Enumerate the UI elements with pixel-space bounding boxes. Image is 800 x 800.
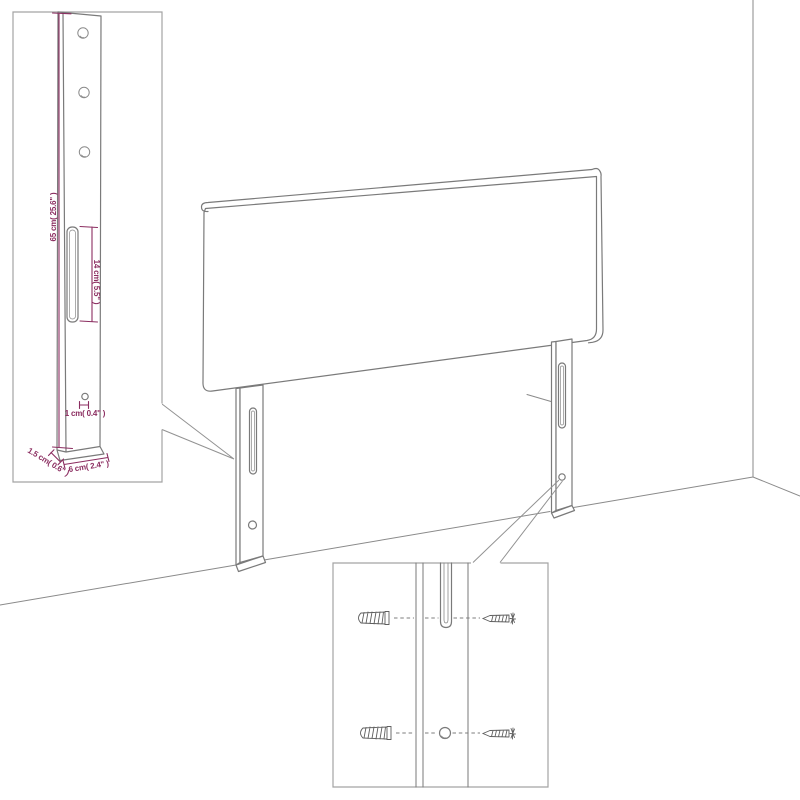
dimension-post-height: 65 cm( 25.6" ) [49, 192, 58, 242]
dimension-hole-diameter: 1 cm( 0.4" ) [65, 409, 106, 418]
left-leg [236, 385, 266, 572]
leader-to-hardware-detail [473, 480, 563, 563]
panel-face [203, 177, 597, 392]
inset-leg-detail: 65 cm( 25.6" ) 14 cm( 5.5" ) 1 cm( 0.4" … [13, 12, 162, 482]
headboard-panel [202, 168, 604, 391]
dimension-diagram: 65 cm( 25.6" ) 14 cm( 5.5" ) 1 cm( 0.4" … [0, 0, 800, 800]
leader-to-leg-detail [162, 404, 234, 459]
floor-line-right [753, 477, 800, 496]
inset-hardware-detail [333, 563, 548, 787]
right-leg-side-face [552, 342, 557, 514]
diagram-page: 65 cm( 25.6" ) 14 cm( 5.5" ) 1 cm( 0.4" … [0, 0, 800, 800]
floor-edge-segment [527, 395, 551, 402]
dimension-slot-length: 14 cm( 5.5" ) [92, 260, 101, 305]
